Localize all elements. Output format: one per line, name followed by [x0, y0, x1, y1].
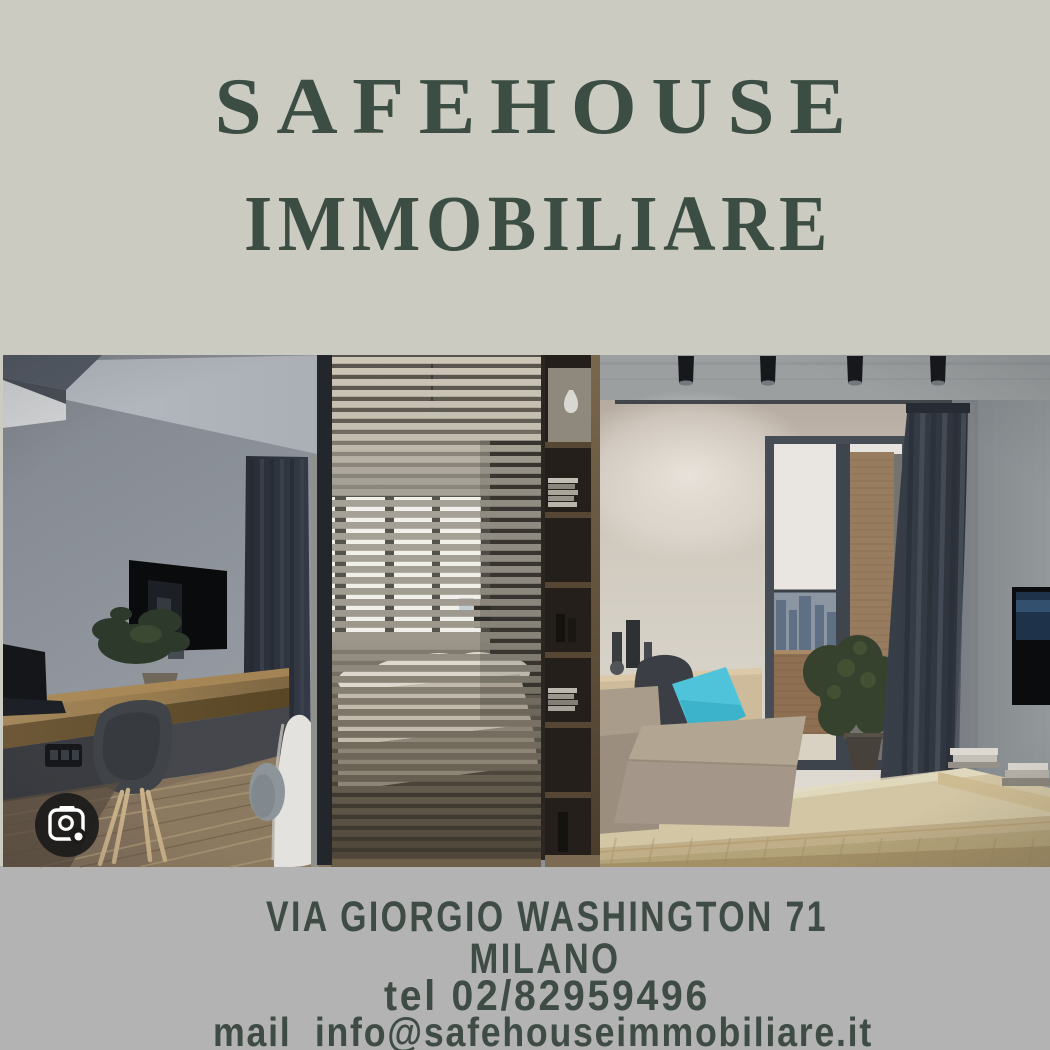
svg-text:mail info@safehouseimmobiliar: mail info@safehouseimmobiliare.it — [213, 1009, 873, 1050]
svg-text:SAFEHOUSE: SAFEHOUSE — [215, 61, 861, 151]
svg-text:IMMOBILIARE: IMMOBILIARE — [244, 181, 833, 268]
svg-text:VIA GIORGIO WASHINGTON 71: VIA GIORGIO WASHINGTON 71 — [266, 893, 828, 941]
